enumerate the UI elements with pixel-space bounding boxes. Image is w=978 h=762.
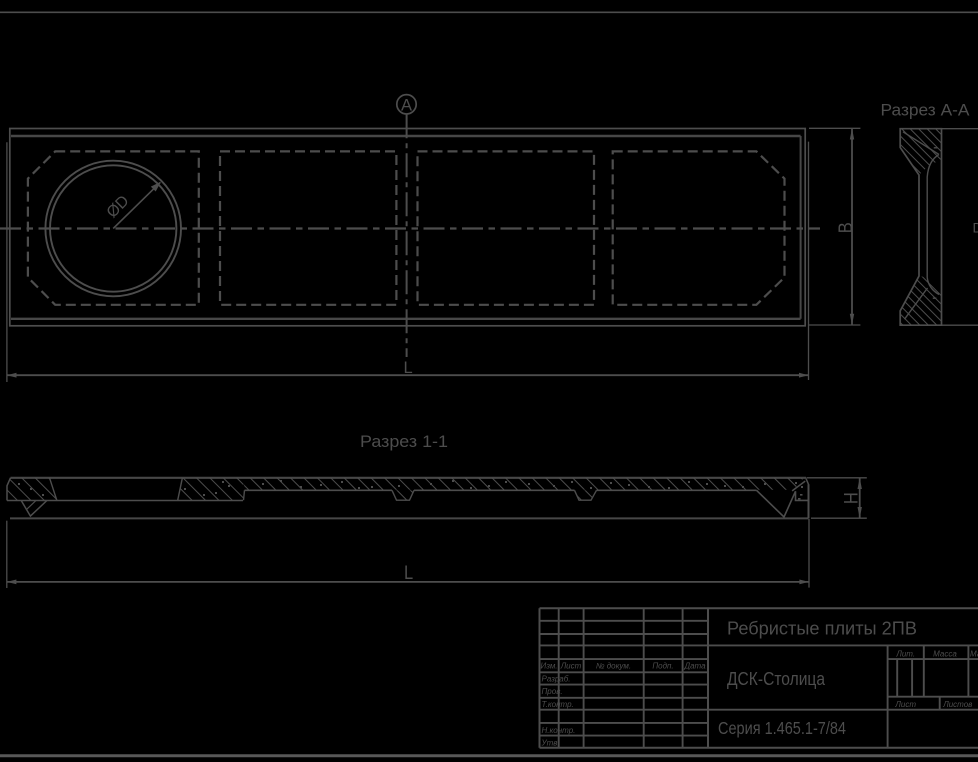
svg-text:B: B bbox=[834, 222, 856, 233]
svg-text:ДСК-Столица: ДСК-Столица bbox=[727, 669, 826, 689]
svg-text:Разрез 1-1: Разрез 1-1 bbox=[360, 432, 448, 451]
svg-text:Пров.: Пров. bbox=[542, 687, 563, 696]
svg-text:Т.контр.: Т.контр. bbox=[542, 700, 574, 709]
svg-text:Лист: Лист bbox=[894, 700, 916, 709]
svg-text:№ докум.: № докум. bbox=[596, 662, 631, 671]
svg-text:Подп.: Подп. bbox=[652, 662, 673, 671]
svg-text:Изм.: Изм. bbox=[540, 662, 557, 671]
svg-text:Н.контр.: Н.контр. bbox=[542, 726, 576, 735]
svg-text:Серия 1.465.1-7/84: Серия 1.465.1-7/84 bbox=[718, 718, 846, 738]
svg-text:Утв.: Утв. bbox=[541, 739, 560, 748]
svg-text:Листов: Листов bbox=[942, 700, 972, 709]
svg-text:Лит.: Лит. bbox=[895, 649, 915, 658]
svg-text:D: D bbox=[973, 220, 978, 236]
svg-text:Масса: Масса bbox=[933, 649, 957, 658]
svg-text:Разраб.: Разраб. bbox=[542, 675, 571, 684]
svg-text:Масштаб: Масштаб bbox=[970, 649, 978, 658]
svg-text:Ребристые плиты 2ПВ: Ребристые плиты 2ПВ bbox=[727, 618, 917, 639]
svg-text:А: А bbox=[401, 96, 412, 114]
svg-text:Разрез А-А: Разрез А-А bbox=[881, 100, 971, 119]
svg-text:L: L bbox=[404, 359, 413, 377]
svg-text:H: H bbox=[840, 492, 862, 504]
svg-text:L: L bbox=[404, 562, 413, 584]
svg-text:Дата: Дата bbox=[683, 662, 706, 671]
svg-text:Лист: Лист bbox=[560, 662, 582, 671]
